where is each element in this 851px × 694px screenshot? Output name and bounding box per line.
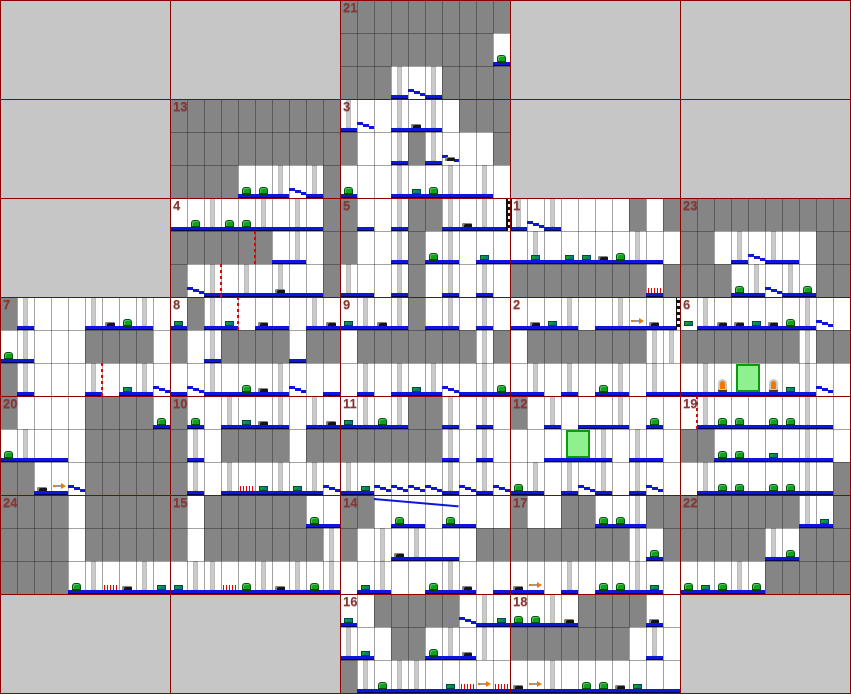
block-tile xyxy=(697,429,714,462)
block-tile xyxy=(323,165,340,198)
black-debris xyxy=(717,322,727,326)
black-debris xyxy=(394,553,404,557)
floor-segment xyxy=(238,227,255,231)
black-debris xyxy=(513,586,523,590)
pillar xyxy=(448,297,453,326)
green-bug xyxy=(752,583,761,590)
block-tile xyxy=(425,198,442,231)
floor-segment xyxy=(629,524,646,528)
black-debris xyxy=(598,256,608,260)
block-tile xyxy=(782,330,799,363)
room-18: 18 xyxy=(510,594,680,693)
floor-segment xyxy=(510,326,527,330)
floor-segment xyxy=(459,227,476,231)
floor-segment xyxy=(595,425,612,429)
pillar xyxy=(482,363,487,392)
floor-segment xyxy=(595,689,612,693)
pillar xyxy=(567,297,572,326)
pillar xyxy=(669,330,674,363)
pillar xyxy=(380,528,385,561)
pillar xyxy=(567,363,572,392)
floor-segment xyxy=(238,491,255,495)
block-tile xyxy=(102,495,119,528)
block-tile xyxy=(408,594,425,627)
block-tile xyxy=(0,462,17,495)
block-tile xyxy=(629,330,646,363)
block-tile xyxy=(459,0,476,33)
pillar xyxy=(193,561,198,590)
pillar xyxy=(312,165,317,194)
pillar xyxy=(397,198,402,227)
block-tile xyxy=(238,330,255,363)
green-bug xyxy=(242,187,251,194)
room-number: 4 xyxy=(173,198,180,214)
room-number: 3 xyxy=(343,99,350,115)
room-number: 10 xyxy=(173,396,187,412)
pillar xyxy=(210,363,215,392)
right-arrow-icon xyxy=(631,318,644,325)
block-tile xyxy=(612,528,629,561)
floor-segment xyxy=(238,194,255,198)
pillar xyxy=(737,561,742,590)
green-bug xyxy=(735,286,744,293)
slope-step xyxy=(828,324,833,327)
block-tile xyxy=(748,495,765,528)
green-bug xyxy=(378,418,387,425)
red-spikes xyxy=(461,684,474,689)
floor-segment xyxy=(476,227,493,231)
floor-segment xyxy=(561,491,578,495)
green-bug xyxy=(735,451,744,458)
floor-segment xyxy=(697,425,714,429)
floor-segment xyxy=(221,293,238,297)
block-tile xyxy=(102,528,119,561)
pillar xyxy=(397,264,402,293)
block-tile xyxy=(697,264,714,297)
room-23: 23 xyxy=(680,198,850,297)
block-tile xyxy=(578,528,595,561)
floor-segment xyxy=(799,491,816,495)
teal-chest xyxy=(412,189,421,194)
green-bug xyxy=(310,583,319,590)
block-tile xyxy=(612,594,629,627)
teal-chest xyxy=(820,519,829,524)
room-number: 15 xyxy=(173,495,187,511)
floor-segment xyxy=(408,392,425,396)
green-bug xyxy=(582,682,591,689)
orange-idol xyxy=(718,379,727,392)
floor-segment xyxy=(425,590,442,594)
block-tile xyxy=(408,231,425,264)
block-tile xyxy=(289,528,306,561)
green-bug xyxy=(803,286,812,293)
block-tile xyxy=(646,495,663,528)
floor-segment xyxy=(476,689,493,693)
room-number: 17 xyxy=(513,495,527,511)
floor-segment xyxy=(391,326,408,330)
green-bug xyxy=(531,616,540,623)
room-9: 9 xyxy=(340,297,510,396)
floor-segment xyxy=(527,623,544,627)
block-tile xyxy=(476,0,493,33)
floor-segment xyxy=(306,194,323,198)
teal-chest xyxy=(174,585,183,590)
floor-segment xyxy=(306,491,323,495)
floor-segment xyxy=(476,458,493,462)
red-dashed-rope xyxy=(254,231,256,264)
floor-segment xyxy=(816,458,833,462)
block-tile xyxy=(442,0,459,33)
pillar xyxy=(278,396,283,425)
block-tile xyxy=(238,429,255,462)
block-tile xyxy=(408,198,425,231)
floor-segment xyxy=(646,260,663,264)
pillar xyxy=(448,165,453,194)
floor-segment xyxy=(340,656,357,660)
block-tile xyxy=(544,264,561,297)
floor-segment xyxy=(816,524,833,528)
block-tile xyxy=(493,66,510,99)
pillar xyxy=(295,561,300,590)
block-tile xyxy=(306,99,323,132)
pillar xyxy=(635,429,640,458)
pillar xyxy=(295,231,300,260)
floor-segment xyxy=(255,227,272,231)
floor-segment xyxy=(374,590,391,594)
block-tile xyxy=(289,99,306,132)
black-debris xyxy=(649,619,659,623)
pillar xyxy=(397,363,402,392)
floor-segment xyxy=(357,491,374,495)
block-tile xyxy=(391,627,408,660)
floor-segment xyxy=(323,392,340,396)
block-tile xyxy=(170,330,187,363)
block-tile xyxy=(510,627,527,660)
block-tile xyxy=(323,99,340,132)
floor-segment xyxy=(238,392,255,396)
block-tile xyxy=(493,528,510,561)
block-tile xyxy=(374,330,391,363)
floor-segment xyxy=(238,425,255,429)
black-debris xyxy=(326,322,336,326)
block-tile xyxy=(833,561,850,594)
pillar xyxy=(805,396,810,425)
block-tile xyxy=(459,66,476,99)
floor-segment xyxy=(476,326,493,330)
block-tile xyxy=(408,33,425,66)
pillar xyxy=(550,594,555,623)
black-debris xyxy=(462,586,472,590)
right-arrow-icon xyxy=(529,681,542,688)
floor-segment xyxy=(612,524,629,528)
pillar xyxy=(635,561,640,590)
floor-segment xyxy=(34,458,51,462)
block-tile xyxy=(340,66,357,99)
block-tile xyxy=(544,528,561,561)
floor-segment xyxy=(357,590,374,594)
block-tile xyxy=(544,330,561,363)
floor-segment xyxy=(255,293,272,297)
floor-segment xyxy=(306,590,323,594)
black-debris xyxy=(326,421,336,425)
teal-chest xyxy=(344,321,353,326)
green-bug xyxy=(616,517,625,524)
floor-segment xyxy=(663,392,680,396)
green-bug xyxy=(650,418,659,425)
black-debris xyxy=(122,586,132,590)
floor-segment xyxy=(561,260,578,264)
pillar xyxy=(652,627,657,656)
pillar xyxy=(210,297,215,326)
floor-segment xyxy=(204,590,221,594)
block-tile xyxy=(442,33,459,66)
teal-chest xyxy=(565,255,574,260)
block-tile xyxy=(765,198,782,231)
block-tile xyxy=(272,132,289,165)
floor-segment xyxy=(595,392,612,396)
floor-segment xyxy=(272,590,289,594)
green-bug xyxy=(599,583,608,590)
floor-segment xyxy=(238,293,255,297)
floor-segment xyxy=(0,359,17,363)
pillar xyxy=(414,528,419,557)
block-tile xyxy=(833,495,850,528)
pillar xyxy=(210,330,215,359)
floor-segment xyxy=(0,458,17,462)
block-tile xyxy=(357,33,374,66)
pillar xyxy=(448,627,453,656)
floor-segment xyxy=(459,656,476,660)
floor-segment xyxy=(697,392,714,396)
teal-chest xyxy=(633,684,642,689)
teal-chest xyxy=(344,618,353,623)
room-12: 12 xyxy=(510,396,680,495)
floor-segment xyxy=(442,425,459,429)
red-dashed-rope xyxy=(220,264,222,297)
block-tile xyxy=(204,132,221,165)
block-tile xyxy=(799,198,816,231)
pillar xyxy=(397,231,402,260)
block-tile xyxy=(357,0,374,33)
floor-segment xyxy=(782,458,799,462)
floor-segment xyxy=(612,590,629,594)
block-tile xyxy=(119,495,136,528)
block-tile xyxy=(544,627,561,660)
block-tile xyxy=(833,198,850,231)
green-bug xyxy=(446,517,455,524)
block-tile xyxy=(816,231,833,264)
block-tile xyxy=(221,495,238,528)
floor-segment xyxy=(493,623,510,627)
floor-segment xyxy=(561,623,578,627)
block-tile xyxy=(272,429,289,462)
room-number: 1 xyxy=(513,198,520,214)
floor-segment xyxy=(748,392,765,396)
block-tile xyxy=(697,231,714,264)
floor-segment xyxy=(595,326,612,330)
block-tile xyxy=(119,462,136,495)
block-tile xyxy=(374,66,391,99)
floor-segment xyxy=(646,656,663,660)
pillar xyxy=(482,396,487,425)
green-door xyxy=(566,430,590,458)
block-tile xyxy=(408,396,425,429)
block-tile xyxy=(85,330,102,363)
block-tile xyxy=(782,561,799,594)
floor-segment xyxy=(17,359,34,363)
floor-segment xyxy=(731,491,748,495)
floor-segment xyxy=(357,293,374,297)
block-tile xyxy=(221,528,238,561)
room-number: 9 xyxy=(343,297,350,313)
orange-idol xyxy=(769,379,778,392)
pillar xyxy=(363,396,368,425)
block-tile xyxy=(204,495,221,528)
floor-segment xyxy=(425,326,442,330)
pillar xyxy=(278,165,283,194)
floor-segment xyxy=(323,590,340,594)
floor-segment xyxy=(561,458,578,462)
floor-segment xyxy=(136,392,153,396)
room-20: 20 xyxy=(0,396,170,495)
block-tile xyxy=(119,330,136,363)
pillar xyxy=(448,231,453,260)
floor-segment xyxy=(119,590,136,594)
floor-segment xyxy=(629,458,646,462)
block-tile xyxy=(51,561,68,594)
floor-segment xyxy=(425,689,442,693)
block-tile xyxy=(527,330,544,363)
block-tile xyxy=(289,132,306,165)
room-number: 18 xyxy=(513,594,527,610)
block-tile xyxy=(680,528,697,561)
floor-segment xyxy=(799,425,816,429)
black-debris xyxy=(530,322,540,326)
pillar xyxy=(210,561,215,590)
floor-segment xyxy=(408,524,425,528)
teal-chest xyxy=(497,618,506,623)
slope-step xyxy=(658,489,663,492)
block-tile xyxy=(323,231,340,264)
floor-segment xyxy=(527,260,544,264)
block-tile xyxy=(170,429,187,462)
block-tile xyxy=(561,528,578,561)
teal-chest xyxy=(361,651,370,656)
block-tile xyxy=(731,495,748,528)
pillar xyxy=(618,363,623,392)
block-tile xyxy=(765,495,782,528)
block-tile xyxy=(153,462,170,495)
green-bug xyxy=(72,583,81,590)
pillar xyxy=(805,363,810,392)
pillar xyxy=(142,297,147,326)
floor-segment xyxy=(765,425,782,429)
floor-segment xyxy=(204,359,221,363)
green-bug xyxy=(123,319,132,326)
block-tile xyxy=(782,198,799,231)
block-tile xyxy=(238,495,255,528)
room-number: 12 xyxy=(513,396,527,412)
block-tile xyxy=(493,99,510,132)
floor-segment xyxy=(459,590,476,594)
block-tile xyxy=(170,462,187,495)
floor-segment xyxy=(391,194,408,198)
slope-step xyxy=(403,489,408,492)
pillar xyxy=(533,462,538,491)
pillar xyxy=(635,528,640,561)
green-bug xyxy=(599,517,608,524)
teal-chest xyxy=(344,420,353,425)
floor-segment xyxy=(408,689,425,693)
floor-segment xyxy=(629,689,646,693)
room-11: 11 xyxy=(340,396,510,495)
black-debris xyxy=(734,322,744,326)
red-spikes xyxy=(495,684,508,689)
block-tile xyxy=(629,594,646,627)
pillar xyxy=(737,231,742,260)
black-debris xyxy=(462,652,472,656)
floor-segment xyxy=(646,557,663,561)
green-bug xyxy=(242,385,251,392)
block-tile xyxy=(272,528,289,561)
block-tile xyxy=(408,429,425,462)
slope-step xyxy=(828,390,833,393)
block-tile xyxy=(391,594,408,627)
room-number: 19 xyxy=(683,396,697,412)
floor-segment xyxy=(204,326,221,330)
pillar xyxy=(652,363,657,392)
block-tile xyxy=(833,264,850,297)
floor-segment xyxy=(544,623,561,627)
teal-chest xyxy=(752,321,761,326)
block-tile xyxy=(340,33,357,66)
pillar xyxy=(771,528,776,557)
red-dashed-rope xyxy=(237,297,239,330)
floor-segment xyxy=(459,524,476,528)
black-debris xyxy=(37,487,47,491)
pillar xyxy=(397,99,402,128)
room-6: 6 xyxy=(680,297,850,396)
teal-chest xyxy=(701,585,710,590)
floor-segment xyxy=(629,326,646,330)
floor-segment xyxy=(527,392,544,396)
floor-segment xyxy=(425,161,442,165)
room-5: 5 xyxy=(340,198,510,297)
floor-segment xyxy=(221,425,238,429)
block-tile xyxy=(391,429,408,462)
black-debris xyxy=(445,157,455,161)
block-tile xyxy=(238,132,255,165)
green-bug xyxy=(429,583,438,590)
block-tile xyxy=(595,627,612,660)
floor-segment xyxy=(255,590,272,594)
pillar xyxy=(397,165,402,194)
floor-segment xyxy=(493,590,510,594)
green-bug xyxy=(344,187,353,194)
floor-segment xyxy=(748,590,765,594)
floor-segment xyxy=(255,392,272,396)
pillar xyxy=(142,363,147,392)
pillar xyxy=(550,396,555,425)
block-tile xyxy=(85,396,102,429)
floor-segment xyxy=(476,491,493,495)
pillar xyxy=(414,660,419,689)
floor-segment xyxy=(544,260,561,264)
block-tile xyxy=(323,132,340,165)
floor-segment xyxy=(272,194,289,198)
room-number: 14 xyxy=(343,495,357,511)
teal-chest xyxy=(361,486,370,491)
